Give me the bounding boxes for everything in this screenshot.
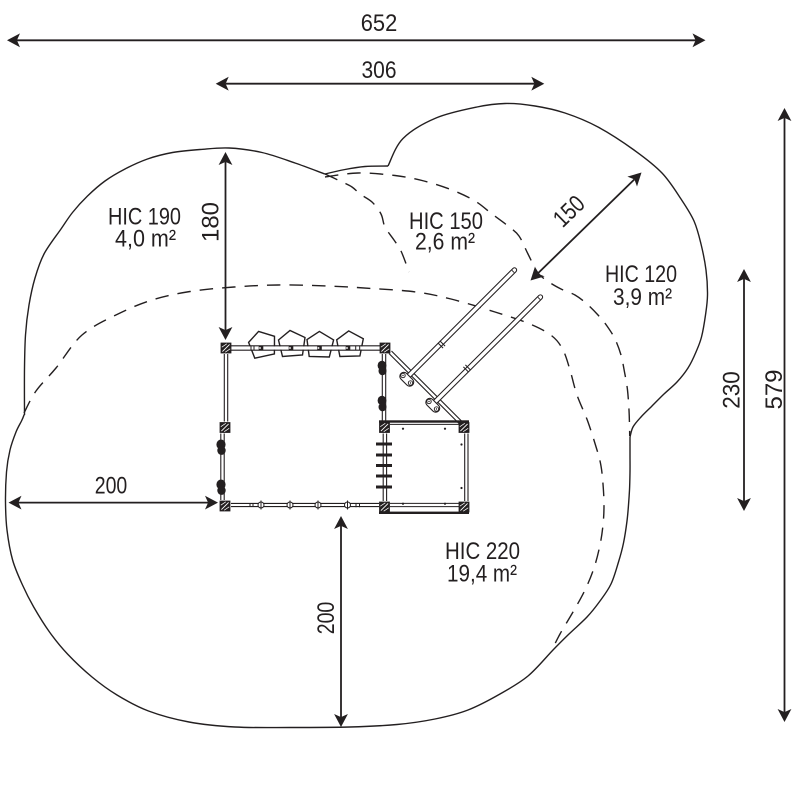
svg-text:3,9 m²: 3,9 m²	[613, 284, 672, 311]
svg-text:19,4 m²: 19,4 m²	[447, 561, 517, 588]
svg-text:4,0 m²: 4,0 m²	[115, 226, 176, 253]
svg-text:306: 306	[362, 57, 397, 84]
svg-text:200: 200	[313, 602, 340, 635]
svg-text:652: 652	[361, 10, 398, 37]
svg-text:2,6 m²: 2,6 m²	[415, 229, 475, 256]
svg-text:230: 230	[719, 371, 746, 409]
svg-text:200: 200	[95, 473, 128, 500]
svg-text:180: 180	[198, 202, 225, 242]
svg-text:579: 579	[761, 370, 788, 410]
